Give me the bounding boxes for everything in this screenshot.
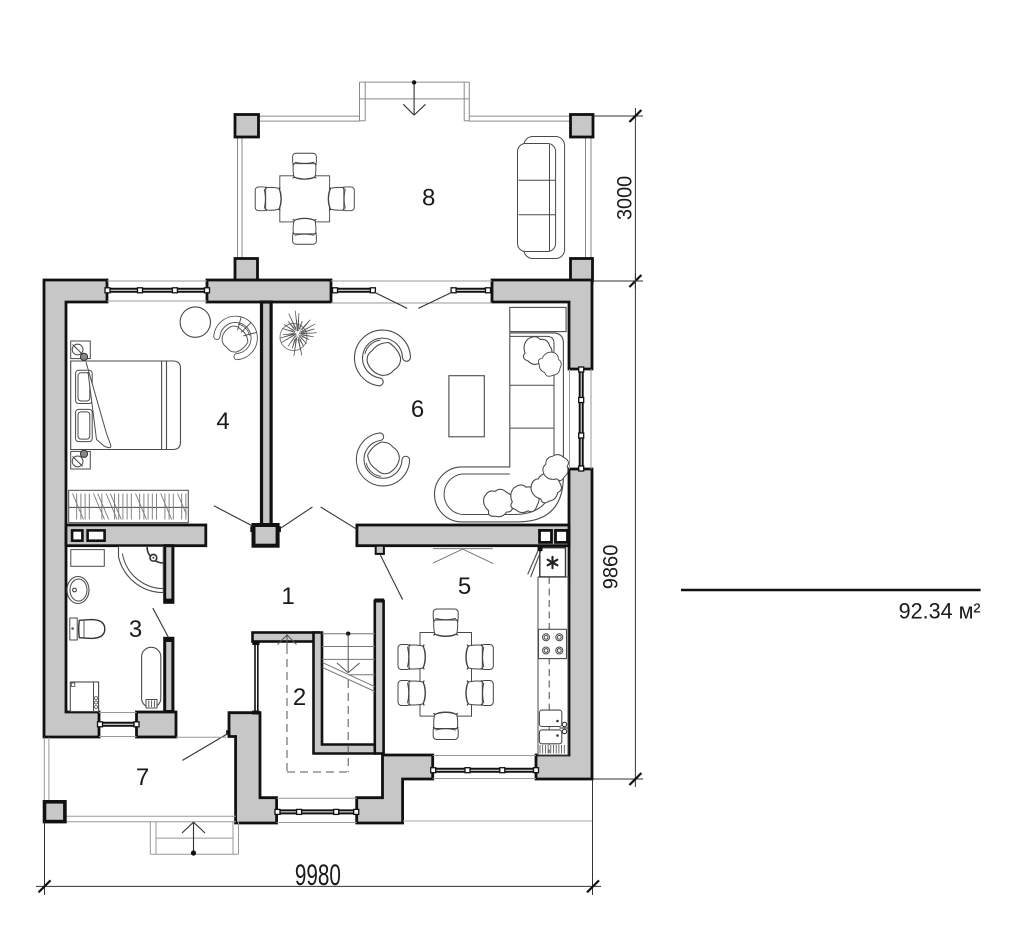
svg-text:5: 5: [458, 573, 471, 600]
svg-text:1: 1: [281, 583, 294, 610]
svg-text:3000: 3000: [612, 176, 636, 220]
svg-text:2: 2: [293, 684, 306, 711]
svg-text:6: 6: [411, 396, 424, 423]
svg-text:3: 3: [129, 616, 142, 643]
svg-text:9980: 9980: [295, 859, 341, 892]
svg-text:4: 4: [216, 408, 229, 435]
svg-text:7: 7: [136, 764, 149, 791]
svg-text:92.34 м²: 92.34 м²: [899, 598, 981, 623]
svg-text:9860: 9860: [599, 545, 623, 590]
svg-text:8: 8: [422, 185, 435, 212]
